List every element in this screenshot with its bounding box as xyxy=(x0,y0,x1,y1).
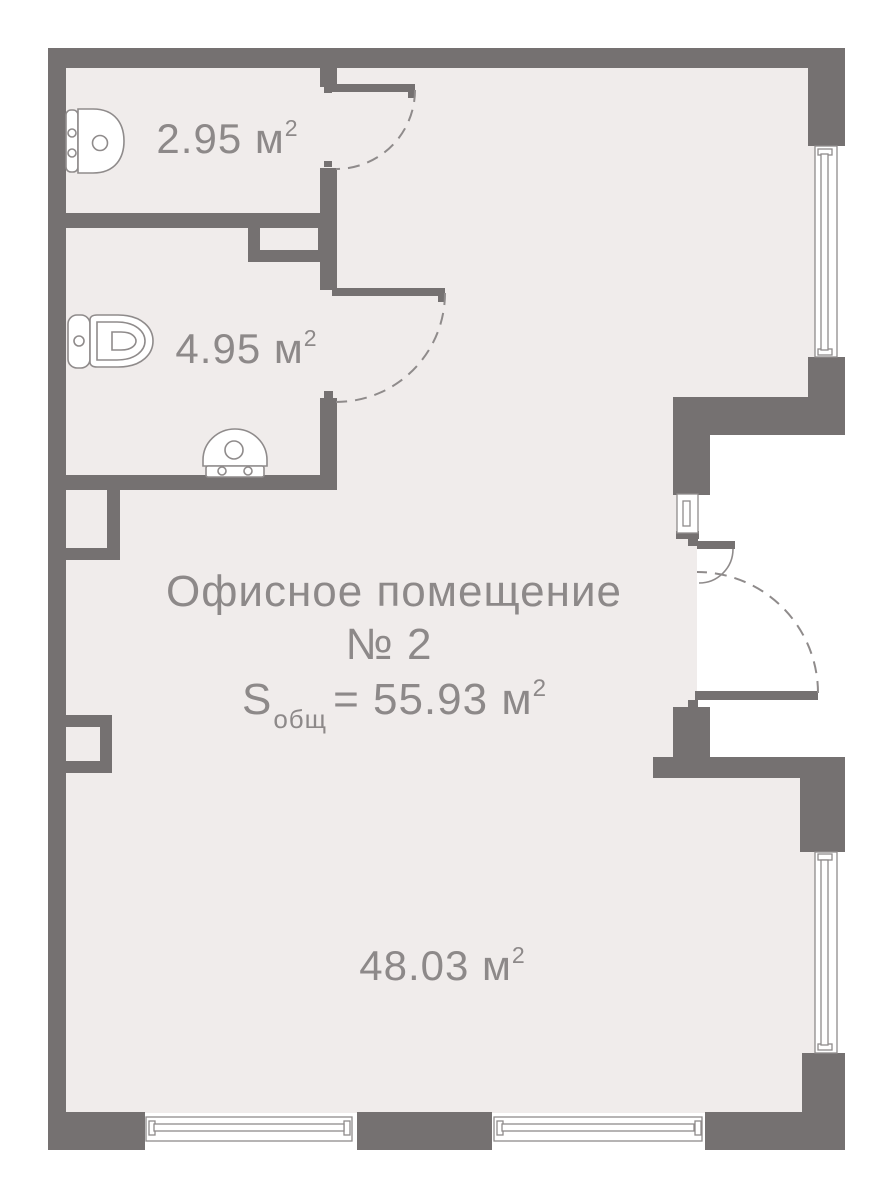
entry-main-swing-arc xyxy=(697,572,818,693)
floor-plan: 2.95 м2 4.95 м2 Офисное помещение № 2 Sо… xyxy=(0,0,895,1200)
room-area-label-main: 48.03 м2 xyxy=(359,945,525,987)
door-entry xyxy=(688,538,818,707)
wall-bottom-middle xyxy=(357,1112,492,1150)
wall-right-block xyxy=(808,357,845,397)
duct1-bottom xyxy=(60,548,120,560)
washbasin-icon xyxy=(66,109,124,173)
room-area-label-mid: 4.95 м2 xyxy=(175,328,316,370)
entry-main-leaf xyxy=(695,691,818,700)
toilet-icon xyxy=(68,315,153,368)
door-leaf xyxy=(332,84,409,92)
wall-entry-left-upper xyxy=(673,435,710,495)
wall-top-right-block xyxy=(808,68,845,146)
window-icon-bottom-middle xyxy=(494,1117,702,1141)
wall-entry-top-band xyxy=(673,397,845,435)
room-area-label-small: 2.95 м2 xyxy=(156,118,297,160)
duct2-bottom xyxy=(62,761,112,773)
window-icon-right-bottom xyxy=(815,852,837,1053)
wall-right-lower xyxy=(800,778,845,852)
wall-entry-left-lower xyxy=(673,707,710,757)
window-icon-entry-small xyxy=(677,494,698,533)
plan-number: № 2 xyxy=(346,623,433,667)
shaft-box-hollow xyxy=(260,228,318,250)
window-icon-bottom-left xyxy=(146,1117,352,1141)
plan-title: Офисное помещение xyxy=(166,570,622,614)
door-stop xyxy=(688,700,698,707)
wall-top xyxy=(48,48,845,68)
wall-room1-bottom xyxy=(48,213,337,228)
wall-bottom-left-corner xyxy=(48,1112,145,1150)
total-area-label: Sобщ= 55.93 м2 xyxy=(242,678,546,722)
door-stop xyxy=(324,161,332,167)
entry-small-swing-arc xyxy=(699,549,733,583)
door-stop xyxy=(324,87,332,93)
wall-bottom-right xyxy=(705,1112,845,1150)
wall-entry-bottom-band xyxy=(653,757,845,778)
door-stop xyxy=(324,391,333,398)
door-leaf xyxy=(332,288,439,296)
entry-small-leaf xyxy=(697,541,735,549)
door-stop xyxy=(688,538,698,546)
door-stop xyxy=(324,281,333,288)
window-icon-right-top xyxy=(815,146,837,357)
wall-room2-bottom xyxy=(60,475,337,490)
